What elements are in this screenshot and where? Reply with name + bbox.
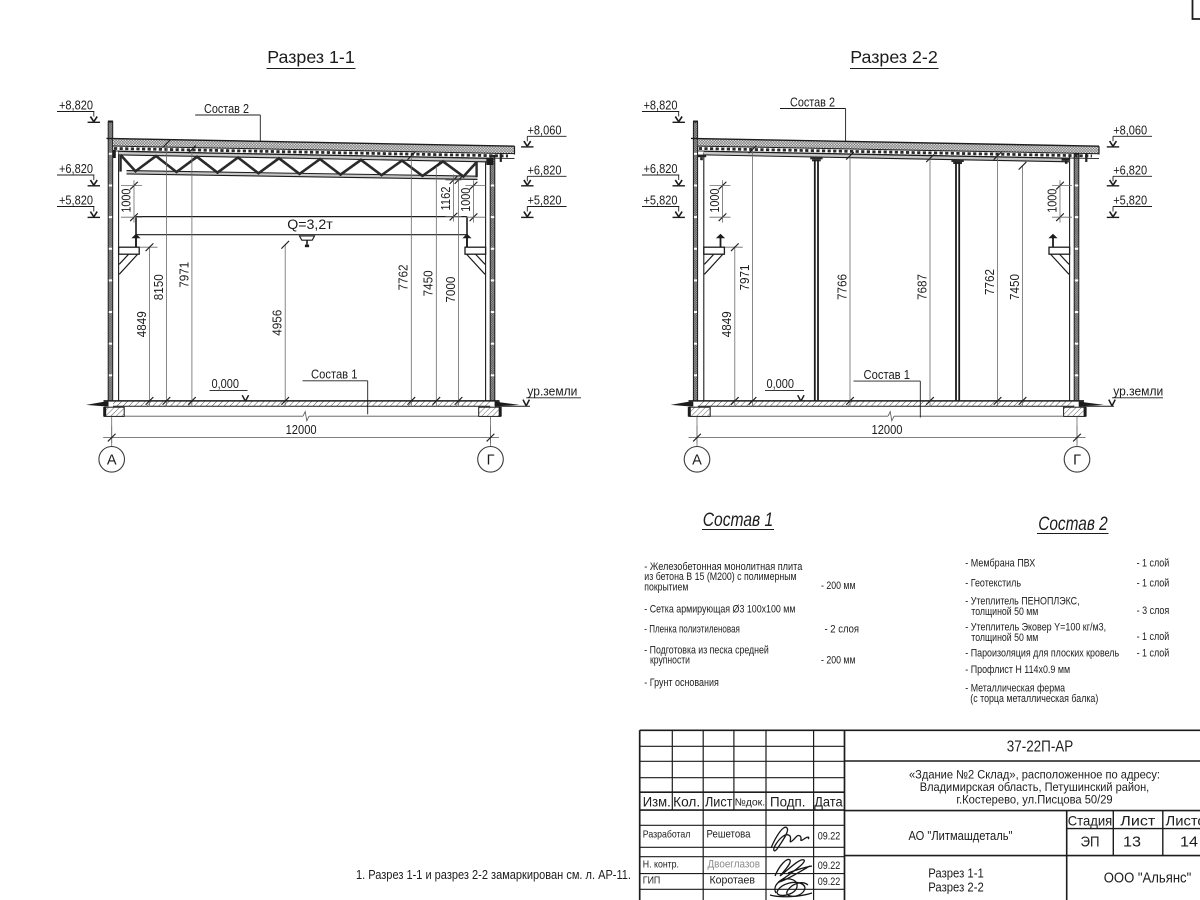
- svg-text:крупности: крупности: [650, 655, 690, 667]
- svg-text:0,000: 0,000: [212, 377, 240, 391]
- svg-text:4849: 4849: [134, 311, 149, 337]
- svg-text:покрытием: покрытием: [644, 581, 688, 593]
- svg-text:+6,820: +6,820: [1113, 162, 1147, 177]
- svg-text:12000: 12000: [286, 423, 317, 437]
- svg-text:- Пленка полиэтиленовая: - Пленка полиэтиленовая: [644, 623, 740, 635]
- svg-text:Разрез 2-2: Разрез 2-2: [850, 47, 938, 67]
- svg-text:1. Разрез 1-1 и разрез 2-2 зам: 1. Разрез 1-1 и разрез 2-2 замаркирован …: [356, 868, 631, 882]
- svg-text:+8,060: +8,060: [1113, 122, 1147, 137]
- svg-text:- Пароизоляция для плоских кро: - Пароизоляция для плоских кровель: [965, 647, 1119, 659]
- svg-text:ООО "Альянс": ООО "Альянс": [1104, 871, 1192, 887]
- svg-text:№док.: №док.: [735, 798, 766, 809]
- svg-text:Дата: Дата: [814, 795, 843, 810]
- svg-text:А: А: [692, 452, 702, 468]
- svg-text:Разрез 2-2: Разрез 2-2: [928, 880, 984, 894]
- svg-text:7000: 7000: [443, 277, 458, 303]
- svg-text:09.22: 09.22: [818, 876, 841, 888]
- svg-text:ур.земли: ур.земли: [527, 385, 577, 399]
- svg-text:Состав 1: Состав 1: [864, 368, 911, 382]
- svg-text:(с торца металлическая балка): (с торца металлическая балка): [970, 693, 1098, 705]
- svg-text:7687: 7687: [914, 274, 929, 300]
- svg-text:1000: 1000: [118, 189, 133, 213]
- svg-text:Подп.: Подп.: [770, 795, 806, 810]
- svg-text:Г: Г: [1073, 452, 1081, 468]
- svg-text:+5,820: +5,820: [1113, 193, 1147, 208]
- svg-text:- Профлист Н 114х0.9 мм: - Профлист Н 114х0.9 мм: [965, 664, 1070, 676]
- svg-text:+5,820: +5,820: [59, 193, 93, 208]
- svg-text:Q=3,2т: Q=3,2т: [287, 217, 333, 232]
- svg-text:0,000: 0,000: [767, 377, 795, 391]
- svg-text:13: 13: [1123, 835, 1141, 851]
- svg-text:12000: 12000: [872, 423, 903, 437]
- svg-text:7762: 7762: [982, 269, 997, 295]
- svg-text:+5,820: +5,820: [528, 193, 562, 208]
- svg-text:09.22: 09.22: [818, 830, 841, 842]
- svg-text:Разрез 1-1: Разрез 1-1: [928, 867, 984, 881]
- svg-text:1000: 1000: [458, 188, 473, 212]
- svg-text:- Мембрана ПВХ: - Мембрана ПВХ: [965, 558, 1035, 570]
- svg-text:- 1 слой: - 1 слой: [1137, 631, 1170, 643]
- svg-text:Г: Г: [487, 452, 495, 468]
- svg-text:7971: 7971: [176, 262, 191, 288]
- svg-text:А: А: [107, 452, 117, 468]
- svg-text:Состав 2: Состав 2: [790, 95, 835, 109]
- svg-text:Кол.: Кол.: [673, 795, 700, 810]
- svg-text:7766: 7766: [834, 274, 849, 300]
- svg-text:ГИП: ГИП: [643, 875, 661, 886]
- svg-text:- Геотекстиль: - Геотекстиль: [965, 577, 1021, 589]
- svg-text:Решетова: Решетова: [707, 828, 752, 840]
- svg-text:ЭП: ЭП: [1081, 835, 1100, 851]
- svg-text:4956: 4956: [270, 310, 285, 336]
- svg-text:Листов: Листов: [1166, 813, 1200, 828]
- svg-text:- 1 слой: - 1 слой: [1137, 558, 1170, 570]
- svg-text:Изм.: Изм.: [643, 795, 671, 810]
- svg-text:Н. контр.: Н. контр.: [643, 859, 679, 870]
- svg-text:Состав 1: Состав 1: [311, 368, 358, 382]
- svg-text:Разработал: Разработал: [643, 828, 691, 840]
- svg-text:толщиной 50 мм: толщиной 50 мм: [971, 632, 1038, 644]
- svg-text:+5,820: +5,820: [644, 193, 678, 208]
- svg-text:Лист: Лист: [1120, 813, 1156, 828]
- svg-text:1000: 1000: [1044, 189, 1059, 213]
- svg-text:- 200 мм: - 200 мм: [821, 655, 856, 667]
- svg-text:Лист: Лист: [705, 795, 733, 810]
- svg-text:Разрез 1-1: Разрез 1-1: [267, 47, 355, 67]
- svg-text:Состав 1: Состав 1: [703, 509, 774, 531]
- svg-text:- Сетка армирующая Ø3 100х100: - Сетка армирующая Ø3 100х100 мм: [644, 603, 795, 615]
- svg-text:7762: 7762: [396, 265, 411, 291]
- svg-text:- 1 слой: - 1 слой: [1137, 577, 1170, 589]
- svg-text:09.22: 09.22: [818, 860, 841, 872]
- svg-text:7450: 7450: [1007, 274, 1022, 300]
- svg-text:+8,820: +8,820: [644, 98, 678, 113]
- svg-text:- 2 слоя: - 2 слоя: [825, 623, 860, 635]
- svg-text:- 200 мм: - 200 мм: [821, 580, 856, 592]
- svg-text:Стадия: Стадия: [1068, 813, 1113, 828]
- svg-text:АО "Литмашдеталь": АО "Литмашдеталь": [909, 829, 1013, 843]
- svg-text:4849: 4849: [719, 311, 734, 337]
- svg-text:1162: 1162: [438, 187, 453, 211]
- svg-text:Состав 2: Состав 2: [1038, 513, 1108, 535]
- svg-text:37-22П-АР: 37-22П-АР: [1007, 739, 1074, 756]
- svg-text:- 3 слоя: - 3 слоя: [1137, 605, 1170, 617]
- svg-text:+6,820: +6,820: [644, 161, 678, 176]
- svg-text:+8,820: +8,820: [59, 98, 93, 113]
- svg-text:Состав 2: Состав 2: [204, 102, 249, 116]
- svg-text:- 1 слой: - 1 слой: [1137, 647, 1170, 659]
- svg-text:- Грунт основания: - Грунт основания: [644, 677, 719, 689]
- svg-text:7450: 7450: [421, 270, 436, 296]
- svg-text:1000: 1000: [707, 189, 722, 213]
- svg-text:г.Костерево, ул.Писцова 50/29: г.Костерево, ул.Писцова 50/29: [956, 792, 1112, 806]
- svg-text:Коротаев: Коротаев: [710, 874, 756, 886]
- svg-text:7971: 7971: [737, 265, 752, 291]
- svg-text:8150: 8150: [151, 274, 166, 300]
- svg-text:14: 14: [1180, 835, 1198, 851]
- svg-text:+6,820: +6,820: [528, 162, 562, 177]
- svg-text:ур.земли: ур.земли: [1113, 385, 1163, 399]
- svg-text:+6,820: +6,820: [59, 161, 93, 176]
- svg-text:+8,060: +8,060: [528, 122, 562, 137]
- svg-text:толщиной 50 мм: толщиной 50 мм: [971, 606, 1038, 618]
- svg-text:Двоеглазов: Двоеглазов: [708, 859, 761, 871]
